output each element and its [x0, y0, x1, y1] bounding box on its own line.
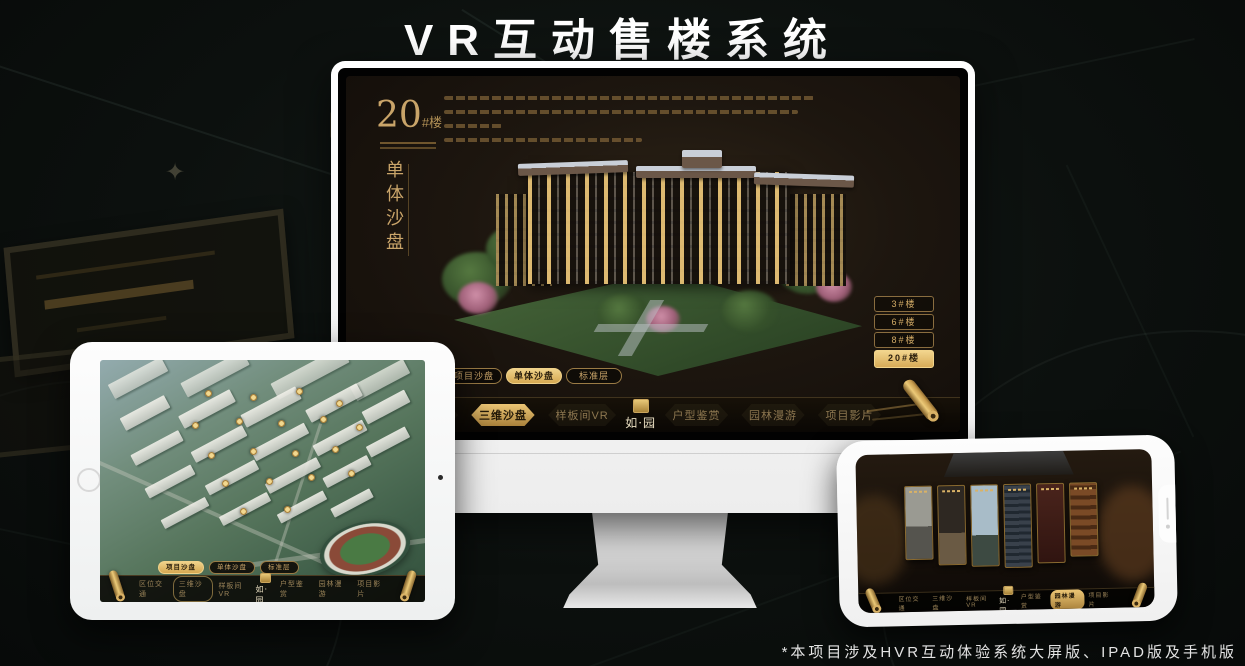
phone-nav-project-film[interactable]: 项目影片 [1084, 588, 1118, 609]
aerial-building-row [205, 459, 260, 495]
aerial-building-row [251, 423, 310, 462]
unit-vertical-label: 单体沙盘 [380, 160, 406, 256]
floor-button-3[interactable]: 3#楼 [874, 296, 934, 312]
nav-item-3d-sandbox[interactable]: 三维沙盘 [467, 404, 539, 426]
floor-button-20[interactable]: 20#楼 [874, 350, 934, 368]
aerial-building-row [191, 425, 248, 463]
interior-glow [855, 494, 910, 585]
subtab-standard-floor[interactable]: 标准层 [566, 368, 622, 384]
nav-item-garden-roam[interactable]: 园林漫游 [737, 404, 809, 426]
building-number-badge[interactable] [208, 452, 215, 459]
brand-seal-icon [1003, 585, 1013, 594]
phone-nav-floorplans[interactable]: 户型鉴赏 [1017, 590, 1051, 611]
building-number-badge[interactable] [308, 474, 315, 481]
tablet-camera-icon [438, 475, 443, 480]
unit-subtitle-en [380, 142, 436, 144]
phone-nav-3d-sandbox[interactable]: 三维沙盘 [928, 591, 962, 612]
walkway [594, 324, 709, 332]
aerial-building-row [130, 430, 183, 466]
building-wing [786, 194, 846, 286]
building-number-badge[interactable] [250, 448, 257, 455]
unit-number: 20#楼 [376, 98, 442, 134]
tablet-nav-showroom-vr[interactable]: 样板间VR [213, 579, 255, 600]
aerial-building-row [305, 383, 363, 423]
building-number-badge[interactable] [356, 424, 363, 431]
gallery-card-2[interactable] [937, 485, 967, 566]
page-title: VR互动售楼系统 [0, 4, 1245, 68]
footnote: *本项目涉及HVR互动体验系统大屏版、IPAD版及手机版 [782, 641, 1237, 662]
phone-brand-logo: 如·园 [999, 585, 1017, 613]
tablet-nav-3d-sandbox[interactable]: 三维沙盘 [173, 576, 214, 602]
compass-star-icon: ✦ [165, 158, 185, 187]
tablet-device: 项目沙盘 单体沙盘 标准层 区位交通 三维沙盘 样板间VR 如·园 户型鉴赏 园… [70, 342, 455, 620]
phone-speaker-icon [1166, 498, 1168, 520]
aerial-building-row [322, 455, 371, 488]
building-number-badge[interactable] [266, 478, 273, 485]
tablet-nav-bar: 区位交通 三维沙盘 样板间VR 如·园 户型鉴赏 园林漫游 项目影片 [100, 575, 425, 602]
tablet-nav-project-film[interactable]: 项目影片 [352, 577, 391, 601]
building-number-badge[interactable] [292, 450, 299, 457]
gallery-card-4[interactable] [1003, 483, 1033, 568]
nav-item-showroom-vr[interactable]: 样板间VR [543, 404, 620, 426]
aerial-building-row [366, 426, 410, 457]
building-number-badge[interactable] [320, 416, 327, 423]
subtab-single-sandbox[interactable]: 单体沙盘 [506, 368, 562, 384]
tablet-brand-logo: 如·园 [256, 573, 275, 603]
building-number-badge[interactable] [336, 400, 343, 407]
poster-canvas: ✦ VR互动售楼系统 20#楼 单体沙盘 [0, 0, 1245, 666]
tablet-subtab-project-sandbox[interactable]: 项目沙盘 [158, 561, 204, 574]
building-number-badge[interactable] [278, 420, 285, 427]
menu-scroll-toggle[interactable] [866, 376, 956, 428]
tablet-subtab-single-sandbox[interactable]: 单体沙盘 [209, 561, 255, 574]
gallery-card-3[interactable] [970, 484, 1000, 567]
phone-camera-icon [1166, 525, 1170, 529]
aerial-building-row [120, 395, 171, 431]
gallery-card-1[interactable] [904, 486, 934, 561]
gallery-card-6[interactable] [1069, 482, 1099, 557]
phone-nav-showroom-vr[interactable]: 样板间VR [962, 592, 999, 610]
building-number-badge[interactable] [296, 388, 303, 395]
unit-divider [408, 164, 409, 256]
aerial-building-row [180, 360, 249, 397]
phone-device: 区位交通 三维沙盘 样板间VR 如·园 户型鉴赏 园林漫游 项目影片 [836, 434, 1178, 627]
interior-ceiling-beam [943, 451, 1073, 478]
building-number-badge[interactable] [332, 446, 339, 453]
building-model [528, 172, 790, 284]
building-number-badge[interactable] [250, 394, 257, 401]
aerial-building-row [240, 386, 301, 427]
tablet-nav-location[interactable]: 区位交通 [134, 577, 173, 601]
aerial-building-row [108, 360, 168, 399]
building-number-badge[interactable] [192, 422, 199, 429]
monitor-stand [557, 512, 763, 608]
phone-notch [1158, 484, 1176, 542]
brand-seal-icon [260, 573, 271, 583]
tablet-subtabs: 项目沙盘 单体沙盘 标准层 [158, 561, 299, 574]
phone-nav-bar: 区位交通 三维沙盘 样板间VR 如·园 户型鉴赏 园林漫游 项目影片 [858, 587, 1154, 613]
tablet-nav-garden-roam[interactable]: 园林漫游 [314, 577, 353, 601]
building-number-badge[interactable] [240, 508, 247, 515]
tree [722, 290, 778, 332]
phone-screen: 区位交通 三维沙盘 样板间VR 如·园 户型鉴赏 园林漫游 项目影片 [855, 449, 1154, 613]
flower-tree [458, 282, 498, 314]
building-number-badge[interactable] [348, 470, 355, 477]
tablet-screen: 项目沙盘 单体沙盘 标准层 区位交通 三维沙盘 样板间VR 如·园 户型鉴赏 园… [100, 360, 425, 602]
phone-nav-garden-roam[interactable]: 园林漫游 [1051, 589, 1085, 610]
brand-seal-icon [633, 399, 649, 413]
tablet-home-button[interactable] [77, 468, 101, 492]
roof-tower [682, 150, 722, 168]
interior-glow [1096, 485, 1155, 582]
floor-button-6[interactable]: 6#楼 [874, 314, 934, 330]
building-number-badge[interactable] [236, 418, 243, 425]
nav-item-floorplans[interactable]: 户型鉴赏 [661, 404, 733, 426]
phone-nav-location[interactable]: 区位交通 [894, 592, 928, 613]
building-number-badge[interactable] [222, 480, 229, 487]
brand-logo: 如·园 [625, 399, 656, 431]
tablet-nav-floorplans[interactable]: 户型鉴赏 [275, 577, 314, 601]
gallery-card-5[interactable] [1036, 483, 1066, 564]
building-number-badge[interactable] [284, 506, 291, 513]
building-number-badge[interactable] [205, 390, 212, 397]
unit-suffix: #楼 [422, 115, 442, 130]
floor-button-8[interactable]: 8#楼 [874, 332, 934, 348]
aerial-building-row [330, 488, 374, 517]
